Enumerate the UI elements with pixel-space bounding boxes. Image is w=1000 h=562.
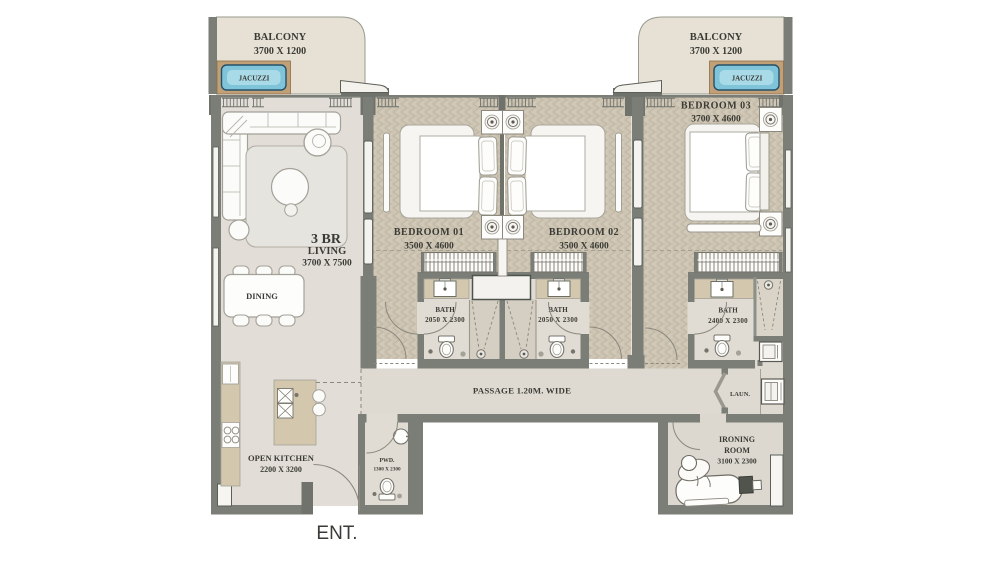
svg-text:BATH: BATH	[718, 307, 738, 315]
svg-text:3700 X 1200: 3700 X 1200	[254, 46, 306, 57]
svg-text:BEDROOM 02: BEDROOM 02	[549, 227, 619, 238]
svg-text:BATH: BATH	[435, 306, 455, 314]
svg-text:BATH: BATH	[548, 306, 568, 314]
svg-text:3700 X 1200: 3700 X 1200	[690, 46, 742, 57]
svg-text:BALCONY: BALCONY	[254, 32, 307, 43]
svg-text:3100 X 2300: 3100 X 2300	[717, 457, 756, 466]
svg-text:JACUZZI: JACUZZI	[732, 75, 763, 83]
svg-text:LAUN.: LAUN.	[730, 391, 750, 398]
svg-text:ROOM: ROOM	[724, 446, 750, 455]
svg-text:OPEN KITCHEN: OPEN KITCHEN	[248, 453, 315, 463]
svg-text:2200 X 3200: 2200 X 3200	[260, 465, 302, 474]
svg-text:2400 X 2300: 2400 X 2300	[708, 317, 748, 325]
svg-text:3700 X 7500: 3700 X 7500	[302, 259, 352, 269]
svg-text:PWD.: PWD.	[380, 458, 396, 464]
svg-text:2050 X 2300: 2050 X 2300	[538, 316, 578, 324]
svg-text:IRONING: IRONING	[719, 435, 755, 444]
svg-text:ENT.: ENT.	[316, 523, 357, 544]
svg-text:3500 X 4600: 3500 X 4600	[559, 242, 609, 252]
svg-text:3700 X 4600: 3700 X 4600	[691, 115, 741, 125]
svg-text:BALCONY: BALCONY	[690, 32, 743, 43]
svg-text:3500 X 4600: 3500 X 4600	[404, 242, 454, 252]
svg-text:DINING: DINING	[246, 291, 278, 301]
svg-text:BEDROOM 03: BEDROOM 03	[681, 101, 751, 112]
svg-text:1300 X 2300: 1300 X 2300	[373, 467, 400, 473]
svg-text:3 BR: 3 BR	[311, 232, 342, 247]
svg-text:PASSAGE 1.20M. WIDE: PASSAGE 1.20M. WIDE	[473, 386, 571, 396]
svg-text:LIVING: LIVING	[308, 246, 347, 257]
svg-text:2050 X 2300: 2050 X 2300	[425, 316, 465, 324]
svg-text:JACUZZI: JACUZZI	[239, 75, 270, 83]
svg-text:BEDROOM 01: BEDROOM 01	[394, 227, 464, 238]
